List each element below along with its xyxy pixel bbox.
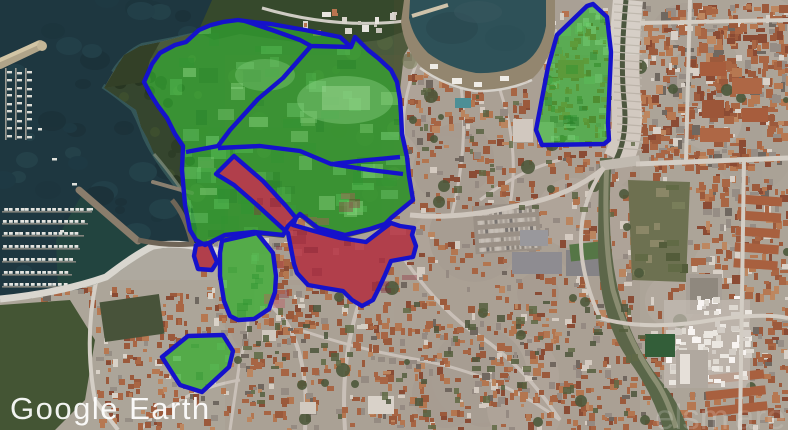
svg-text:elsm: elsm [655, 398, 729, 430]
svg-text:Google Earth: Google Earth [10, 391, 211, 426]
svg-text:are: are [735, 398, 786, 430]
